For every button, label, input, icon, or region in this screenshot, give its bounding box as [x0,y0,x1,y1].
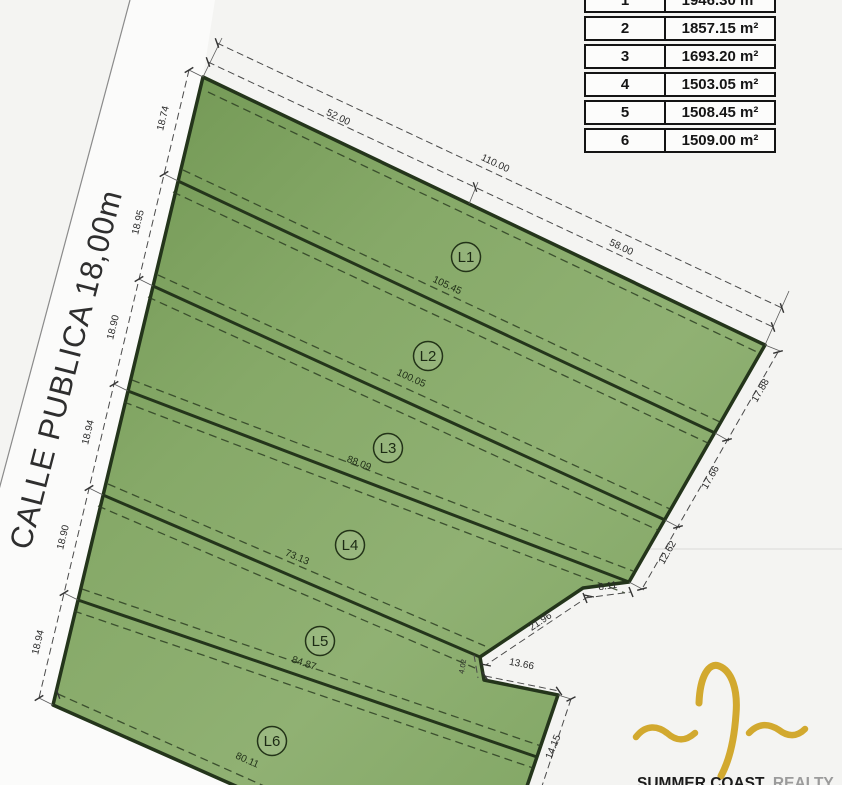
lot-label-l4: L4 [342,537,359,554]
dim-label-top-52: 52.00 [324,107,352,128]
table-cell-lot: 1 [586,0,666,11]
table-row: 3 1693.20 m² [584,44,776,69]
logo-left-wave [636,727,695,739]
dim-label-notch-8-11: 8.11 [598,580,619,594]
table-row: 5 1508.45 m² [584,100,776,125]
table-row: 1 1946.30 m² [584,0,776,13]
logo-text-light: REALTY [773,775,835,785]
lot-label-l2: L2 [420,348,437,365]
dim-label-top-110: 110.00 [479,152,511,175]
table-cell-area: 1503.05 m² [666,74,774,95]
lot-area-table: 1 1946.30 m² 2 1857.15 m² 3 1693.20 m² 4… [584,0,776,153]
lot-badge-l5: L5 [306,627,335,656]
survey-plat-page: { "street_label": "CALLE PUBLICA 18,00m"… [0,0,842,785]
table-cell-area: 1509.00 m² [666,130,774,151]
table-row: 6 1509.00 m² [584,128,776,153]
table-cell-area: 1693.20 m² [666,46,774,67]
realty-logo: SUMMER COAST REALTY [636,665,834,785]
logo-wordmark: SUMMER COAST REALTY [637,775,834,785]
table-row: 4 1503.05 m² [584,72,776,97]
table-cell-area: 1857.15 m² [666,18,774,39]
lot-badge-l4: L4 [336,531,365,560]
table-cell-lot: 6 [586,130,666,151]
lot-badge-l1: L1 [452,243,481,272]
dim-label-notch-14-15: 14.15 [544,733,564,761]
lot-label-l1: L1 [458,249,475,266]
table-cell-lot: 3 [586,46,666,67]
lot-badge-l2: L2 [414,342,443,371]
logo-center-swoosh [699,665,736,776]
table-cell-lot: 2 [586,18,666,39]
dim-label-notch-13-66: 13.66 [508,657,535,673]
dim-label-right-2: 17.66 [700,464,722,492]
dim-label-top-58: 58.00 [607,237,635,258]
table-cell-area: 1946.30 m² [666,0,774,11]
lot-badge-l3: L3 [374,434,403,463]
dim-label-right-1: 17.88 [750,377,772,405]
dim-label-right-3: 12.62 [657,539,679,567]
lot-label-l3: L3 [380,440,397,457]
table-row: 2 1857.15 m² [584,16,776,41]
table-cell-lot: 4 [586,74,666,95]
lot-badge-l6: L6 [258,727,287,756]
table-cell-lot: 5 [586,102,666,123]
lot-label-l5: L5 [312,633,329,650]
table-cell-area: 1508.45 m² [666,102,774,123]
lot-label-l6: L6 [264,733,281,750]
logo-right-wave [749,725,805,735]
logo-text-bold: SUMMER COAST [637,775,765,785]
